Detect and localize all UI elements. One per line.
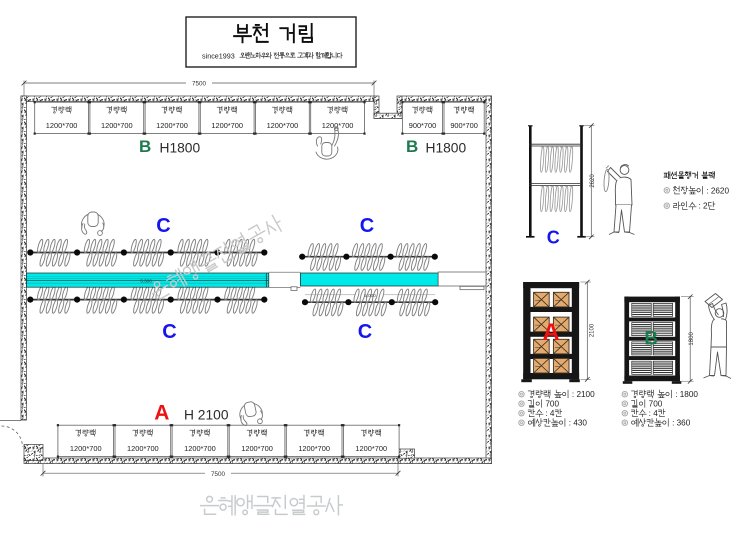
svg-text:: 1800: : 1800 (675, 390, 698, 399)
svg-text:1200*700: 1200*700 (298, 444, 330, 453)
svg-text:: 4: : 4 (649, 409, 659, 418)
svg-text:since1993: since1993 (202, 52, 235, 61)
svg-text:B: B (406, 137, 418, 156)
svg-text:C: C (162, 321, 176, 343)
svg-text:C: C (156, 215, 170, 237)
svg-text:2620: 2620 (590, 174, 596, 188)
svg-text:: 2620: : 2620 (706, 186, 729, 195)
svg-text:7500: 7500 (211, 471, 226, 478)
svg-text:: 430: : 430 (569, 419, 588, 428)
svg-text:H 2100: H 2100 (184, 408, 229, 423)
svg-text:H1800: H1800 (160, 141, 201, 156)
svg-text:900*700: 900*700 (450, 121, 478, 130)
svg-text:B: B (644, 329, 658, 350)
svg-text:: 360: : 360 (672, 419, 691, 428)
svg-text:1200*700: 1200*700 (156, 121, 188, 130)
svg-text:1200*700: 1200*700 (101, 121, 133, 130)
svg-text:B: B (139, 137, 151, 156)
svg-text:1200*700: 1200*700 (184, 444, 216, 453)
svg-text:1200*700: 1200*700 (127, 444, 159, 453)
svg-text:1800: 1800 (689, 332, 695, 346)
svg-text:1200*700: 1200*700 (355, 444, 387, 453)
svg-text:1200*700: 1200*700 (46, 121, 78, 130)
svg-text:5,300: 5,300 (140, 278, 152, 283)
svg-text:700: 700 (649, 400, 663, 409)
svg-text:1200*700: 1200*700 (70, 444, 102, 453)
svg-text:1200*700: 1200*700 (241, 444, 273, 453)
svg-text:1200*700: 1200*700 (267, 121, 299, 130)
svg-text:C: C (547, 227, 560, 247)
svg-text:5,000: 5,000 (364, 293, 376, 298)
svg-text:A: A (154, 402, 169, 425)
svg-text:C: C (358, 321, 372, 343)
svg-text:: 4: : 4 (545, 409, 555, 418)
svg-text:700: 700 (545, 400, 559, 409)
svg-text:1200*700: 1200*700 (211, 121, 243, 130)
svg-text:7500: 7500 (192, 81, 207, 88)
svg-text:H1800: H1800 (426, 141, 467, 156)
svg-text:2100: 2100 (590, 323, 596, 337)
svg-text:A: A (542, 319, 559, 346)
svg-text:C: C (360, 215, 374, 237)
svg-text:: 2100: : 2100 (572, 390, 595, 399)
svg-text:: 2: : 2 (698, 202, 708, 211)
svg-text:900*700: 900*700 (409, 121, 437, 130)
